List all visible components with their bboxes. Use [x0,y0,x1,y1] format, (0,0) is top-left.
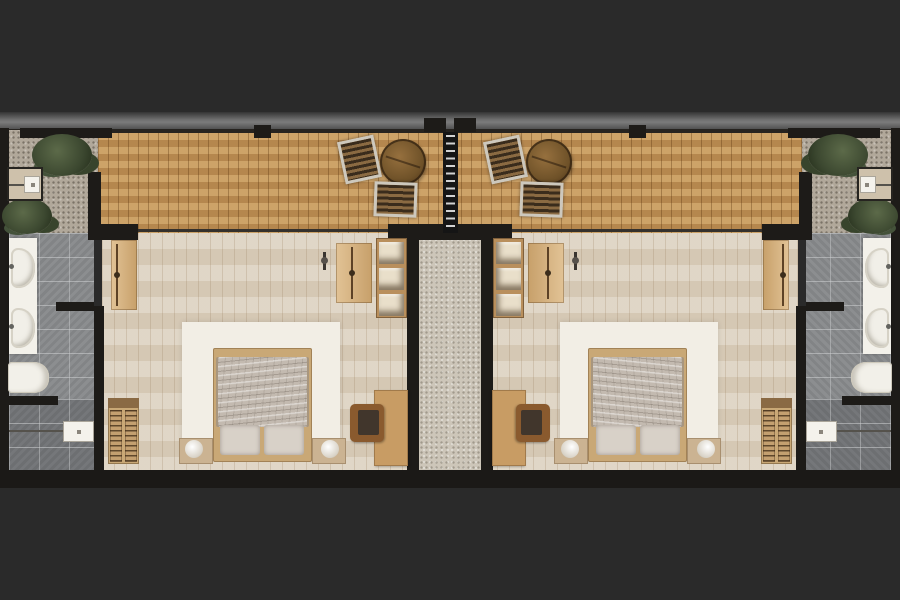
privacy-screen-divider [443,132,458,233]
pipe-line [875,184,891,186]
wall-room-corner [96,224,138,240]
faucet-icon [9,264,14,269]
bottom-wall [0,470,900,488]
desk-chair [516,404,550,442]
floor-plan-canvas [0,0,900,600]
wall-bathroom-room [796,306,806,486]
bed-pillow [264,425,304,455]
shower-control-box [63,421,94,442]
door-knob [545,270,551,276]
control-dot [31,183,35,187]
shelf-cubby [496,268,521,290]
side-door-panel [111,240,137,310]
shelf-cubby [379,294,404,316]
nightstand [554,438,588,464]
shower-control-box [806,421,837,442]
table-lamp [185,440,203,458]
lamp-head [321,257,328,264]
nightstand [179,438,213,464]
nightstand [687,438,721,464]
wall-bathroom-room [94,306,104,486]
wall-corridor [407,224,419,486]
screen-slats [446,135,455,230]
shelf-cubby [379,268,404,290]
desk-chair [350,404,384,442]
wall-stub-top [629,125,646,138]
lounge-chair [519,181,563,217]
vanity-counter [863,238,891,354]
shower-pipe-line [9,430,65,432]
lamp-head [572,257,579,264]
table-lamp [321,440,339,458]
wardrobe-shelf [761,398,792,408]
terrace-furniture-cluster [487,138,579,220]
floor-lamp [323,252,326,270]
faucet-icon [9,324,14,329]
basin-sink [865,308,889,348]
equipment-pad [857,167,893,201]
vanity-counter [9,238,37,354]
wardrobe-shelf [108,398,139,408]
bed-pillow [596,425,636,455]
walkway-half [450,240,481,470]
table-seam [532,155,567,168]
chair-seat [521,410,542,435]
entry-door-panel [528,243,564,303]
lounge-chair [337,135,382,185]
lounge-chair [483,135,528,185]
hanging-clothes [125,410,137,462]
door-knob [349,270,355,276]
table-seam [386,155,421,168]
shelf-cubby [496,242,521,264]
door-knob [114,272,120,278]
faucet-icon [886,324,891,329]
sliding-glass-door [136,229,388,232]
bed-pillow [640,425,680,455]
chair-seat [358,410,379,435]
hanging-clothes [110,410,122,462]
pipe-line [9,184,25,186]
table-lamp [697,440,715,458]
control-dot [77,430,81,434]
hanging-clothes [778,410,790,462]
plant [848,198,898,234]
double-bed [588,348,687,462]
sliding-glass-door [512,229,764,232]
control-box [860,176,876,193]
wall-shower-partition [6,396,58,405]
plant [2,198,52,234]
basin-sink [11,248,35,288]
nightstand [312,438,346,464]
shelf-cubby [379,242,404,264]
basin-sink [11,308,35,348]
lounge-chair [373,181,417,217]
toilet [851,362,892,393]
table-lamp [561,440,579,458]
round-table [526,139,572,185]
bed-duvet [593,357,682,427]
door-knob [780,272,786,278]
double-bed [213,348,312,462]
control-box [24,176,40,193]
round-table [380,139,426,185]
equipment-pad [7,167,43,201]
bed-pillow [220,425,260,455]
bed-duvet [218,357,307,427]
open-wardrobe [108,398,139,464]
toilet [8,362,49,393]
walkway-half [419,240,450,470]
side-door-panel [763,240,789,310]
faucet-icon [886,264,891,269]
open-shelf-unit [493,238,524,318]
wall-bathroom-stub [56,302,94,311]
basin-sink [865,248,889,288]
entry-door-panel [336,243,372,303]
control-dot [865,183,869,187]
shower-pipe-line [835,430,891,432]
shelf-cubby [496,294,521,316]
wall-room-corner [762,224,804,240]
wall-stub-top-center [454,118,476,132]
control-dot [819,430,823,434]
hanging-clothes [763,410,775,462]
open-wardrobe [761,398,792,464]
wall-shower-partition [842,396,894,405]
wall-stub-top-center [424,118,446,132]
wall-stub-top [254,125,271,138]
floor-plan [0,112,900,492]
terrace-furniture-cluster [341,138,433,220]
wall-bathroom-stub [806,302,844,311]
floor-lamp [574,252,577,270]
open-shelf-unit [376,238,407,318]
